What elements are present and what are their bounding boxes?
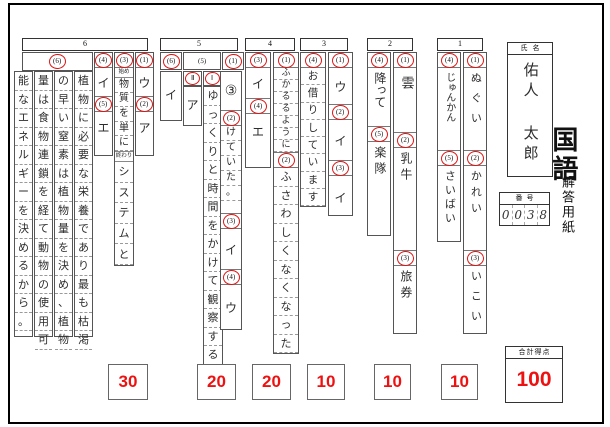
q2-answer: イ [329, 120, 352, 160]
correct-mark-circle: (1) [224, 53, 242, 69]
q2-number-cell: (2) [329, 104, 352, 120]
question-number: (2) [401, 137, 409, 144]
section-6-q4-q5-column: (4) イ (5) エ [94, 52, 113, 156]
question-number: (2) [140, 101, 148, 108]
section-1-right-column: (1) ぬぐい (2) かれい (3) いこい [463, 52, 487, 334]
question-number: (4) [445, 57, 453, 64]
q6-written-answer: 植物に必要な栄養であり最も枯渇 の早い窒素は植物量を決め、植物 量は食物連鎖を経… [22, 71, 93, 337]
question-number: (3) [401, 255, 409, 262]
correct-mark-circle: (5) [440, 150, 458, 166]
empty-cell [221, 201, 241, 213]
correct-mark-circle: (1) [277, 52, 295, 68]
student-name: 佑人 太郎 [521, 62, 538, 165]
question-number: (3) [471, 255, 479, 262]
answer-start-label: 始め [115, 68, 133, 78]
number-box: 番号 0 0 3 8 [499, 192, 550, 226]
correct-mark-circle: (3) [396, 250, 414, 266]
q4-number-cell: (4) [246, 98, 270, 114]
correct-mark-circle: (2) [466, 150, 484, 166]
answer-sheet: 6 (6) 植物に必要な栄養であり最も枯渇 の早い窒素は植物量を決め、植物 量は… [0, 0, 610, 427]
q1-answer: 雲 [394, 68, 416, 132]
section-1-header: 1 [437, 38, 483, 51]
q2-answer: けていた。 [221, 126, 241, 201]
student-number: 0 0 3 8 [500, 205, 549, 225]
section-4-header: 4 [245, 38, 295, 51]
score-box-section-6: 30 [108, 364, 148, 400]
q5-answer: エ [95, 112, 112, 142]
q2-answer: 乳牛 [394, 148, 416, 250]
correct-mark-circle: (2) [135, 96, 153, 112]
q6-answer-line-3: 量は食物連鎖を経て動物の使用可 [34, 71, 53, 337]
question-number: (5) [445, 155, 453, 162]
q3-start-answer: 物質を単に [115, 78, 133, 151]
q2-answer: ふさわしくなくなった [274, 168, 298, 353]
q6-number-cell: (6) [160, 52, 182, 70]
q3-answer: 旅券 [394, 266, 416, 352]
q6-answer-line-1: 植物に必要な栄養であり最も枯渇 [74, 71, 93, 337]
section-6-q6-block: (6) 植物に必要な栄養であり最も枯渇 の早い窒素は植物量を決め、植物 量は食物… [22, 52, 93, 337]
correct-mark-circle: (4) [370, 52, 388, 68]
q4-number-cell: (4) [438, 53, 460, 68]
q3-number-cell: (3) [115, 53, 133, 68]
q3-answer: イ [329, 176, 352, 218]
correct-mark-circle: (3) [222, 213, 240, 229]
q4-answer: イ [95, 68, 112, 96]
question-number: (1) [401, 57, 409, 64]
question-number: (6) [167, 58, 175, 65]
q3-end-answer: システムと [115, 162, 133, 265]
question-number: (5) [375, 131, 383, 138]
correct-mark-circle: (4) [440, 52, 458, 68]
section-6: 6 (6) 植物に必要な栄養であり最も枯渇 の早い窒素は植物量を決め、植物 量は… [22, 38, 148, 337]
correct-mark-circle: (5) [94, 96, 112, 112]
q5-part2-column: ア [183, 86, 202, 126]
question-number: (3) [227, 218, 235, 225]
total-score-box: 合計得点 100 [505, 346, 563, 403]
q3-answer: イ [221, 229, 241, 269]
correct-mark-circle: (4) [304, 52, 322, 68]
section-3: 3 (4) お借りしています (1) ウ (2) イ (3) イ [300, 38, 348, 216]
q2-number-cell: (2) [221, 110, 241, 126]
number-digit: 0 [512, 205, 525, 225]
section-4-right-column: (1) ふかるるように (2) ふさわしくなくなった [273, 52, 299, 354]
q4-answer: ウ [221, 285, 241, 329]
section-5-header: 5 [160, 38, 238, 51]
correct-mark-circle: Ⅰ [204, 71, 220, 85]
q4-answer: お借りしています [301, 68, 325, 206]
correct-mark-circle: (6) [48, 53, 66, 69]
name-box: 氏名 佑人 太郎 [507, 42, 553, 177]
q5-number-cell: (5) [368, 126, 390, 142]
q5-number-cell: (5) [95, 96, 112, 112]
q4-number-cell: (4) [301, 53, 325, 68]
q3-number-cell: (3) [464, 250, 486, 266]
q1-answer: ぬぐい [464, 68, 486, 150]
q3-number-cell: (3) [221, 213, 241, 229]
q1-answer: ふかるるように [274, 68, 298, 152]
sheet-title: 解答用紙 [559, 175, 574, 235]
section-2: 2 (4) 降って (5) 楽隊 (1) 雲 (2) 乳牛 (3) 旅券 [367, 38, 413, 334]
question-number: (1) [336, 57, 344, 64]
correct-mark-circle: (2) [331, 104, 349, 120]
q4-answer: 降って [368, 68, 390, 126]
question-number: (4) [375, 57, 383, 64]
question-number: (6) [53, 58, 61, 65]
q1-answer: ウ [136, 68, 153, 96]
score-box-section-1: 10 [441, 364, 478, 400]
section-5-right-column: ③ (2) けていた。 (3) イ (4) ウ [220, 71, 242, 330]
q4-number-cell: (4) [368, 53, 390, 68]
q2-number-cell: (2) [394, 132, 416, 148]
question-number: (1) [471, 57, 479, 64]
total-score-value: 100 [506, 359, 562, 401]
question-number: (3) [336, 165, 344, 172]
section-4-left-column: (3) イ (4) エ [245, 52, 271, 168]
question-number: (5) [198, 57, 207, 65]
question-number: (5) [99, 101, 107, 108]
q5-part2-answer: ア [184, 87, 201, 121]
correct-mark-circle: (4) [249, 98, 267, 114]
q5-answer: さいばい [438, 166, 460, 250]
section-6-header: 6 [22, 38, 148, 51]
q4-answer: エ [246, 114, 270, 148]
q6-answer: イ [161, 72, 181, 116]
q4-number-cell: (4) [221, 269, 241, 285]
correct-mark-circle: Ⅱ [184, 71, 200, 85]
question-number: (4) [227, 274, 235, 281]
q5-number-cell: (5) [183, 52, 221, 70]
correct-mark-circle: (3) [331, 160, 349, 176]
section-2-header: 2 [367, 38, 413, 51]
q6-number-cell: (6) [22, 52, 93, 71]
part-2-label-cell: Ⅱ [183, 71, 202, 86]
question-number: (2) [282, 157, 290, 164]
q6-answer-line-2: の早い窒素は植物量を決め、植物 [54, 71, 73, 337]
q2-answer: ア [136, 112, 153, 142]
name-value-area: 佑人 太郎 [508, 55, 552, 165]
correct-mark-circle: (4) [222, 269, 240, 285]
q3-answer: イ [246, 68, 270, 98]
question-number: (2) [336, 109, 344, 116]
score-box-section-4: 20 [252, 364, 291, 400]
q1-number-cell: (1) [222, 52, 244, 70]
q2-number-cell: (2) [464, 150, 486, 166]
section-5: 5 (6) (5) (1) イ Ⅱ Ⅰ ア ゆっくりと時間をかけて観察する [160, 38, 238, 366]
correct-mark-circle: (3) [249, 52, 267, 68]
q3-number-cell: (3) [394, 250, 416, 266]
question-number: (3) [120, 57, 128, 64]
score-box-section-5: 20 [197, 364, 236, 400]
question-number: (1) [140, 57, 148, 64]
q2-answer: かれい [464, 166, 486, 250]
correct-mark-circle: (2) [396, 132, 414, 148]
correct-mark-circle: (2) [222, 110, 240, 126]
correct-mark-circle: (4) [94, 52, 112, 68]
q1-number-cell: (1) [274, 53, 298, 68]
q3-number-cell: (3) [246, 53, 270, 68]
q1-answer: ③ [221, 72, 241, 110]
q2-number-cell: (2) [274, 152, 298, 168]
number-digit: 0 [500, 205, 512, 225]
section-6-q3-column: (3) 始め 物質を単に 終わり システムと [114, 52, 134, 266]
correct-mark-circle: (1) [135, 52, 153, 68]
total-score-label: 合計得点 [506, 347, 562, 359]
correct-mark-circle: (5) [370, 126, 388, 142]
section-6-q1-q2-column: (1) ウ (2) ア [135, 52, 154, 156]
q1-number-cell: (1) [329, 53, 352, 68]
answer-end-label: 終わり [115, 151, 133, 162]
correct-mark-circle: (1) [331, 52, 349, 68]
section-4: 4 (3) イ (4) エ (1) ふかるるように (2) ふさわしくなくなった [245, 38, 295, 354]
correct-mark-circle: (1) [396, 52, 414, 68]
name-label: 氏名 [508, 43, 552, 55]
question-number: (2) [471, 155, 479, 162]
section-5-q5-block: Ⅱ Ⅰ ア ゆっくりと時間をかけて観察する [183, 71, 219, 366]
q1-number-cell: (1) [136, 53, 153, 68]
q3-number-cell: (3) [329, 160, 352, 176]
question-number: (4) [309, 57, 317, 64]
question-number: (4) [99, 57, 107, 64]
number-digit: 3 [524, 205, 537, 225]
score-box-section-2: 10 [374, 364, 411, 400]
correct-mark-circle: (3) [466, 250, 484, 266]
section-3-left-column: (4) お借りしています [300, 52, 326, 207]
question-number: (1) [229, 58, 237, 65]
section-3-right-column: (1) ウ (2) イ (3) イ [328, 52, 353, 216]
question-number: (2) [227, 115, 235, 122]
correct-mark-circle: (6) [162, 53, 180, 69]
question-number: (4) [254, 103, 262, 110]
q6-answer-line-4: 能なエネルギーを決めるから。 [14, 71, 33, 337]
q1-answer: ウ [329, 68, 352, 104]
section-1-left-column: (4) じゅんかん (5) さいばい [437, 52, 461, 242]
q1-number-cell: (1) [464, 53, 486, 68]
correct-mark-circle: (2) [277, 152, 295, 168]
q4-answer: じゅんかん [438, 68, 460, 150]
section-5-q6-column: イ [160, 71, 182, 121]
section-2-right-column: (1) 雲 (2) 乳牛 (3) 旅券 [393, 52, 417, 334]
q1-number-cell: (1) [394, 53, 416, 68]
q5-answer: 楽隊 [368, 142, 390, 242]
section-2-left-column: (4) 降って (5) 楽隊 [367, 52, 391, 236]
correct-mark-circle: (1) [466, 52, 484, 68]
number-label: 番号 [500, 193, 549, 205]
q2-number-cell: (2) [136, 96, 153, 112]
question-number: (3) [254, 57, 262, 64]
question-number: (1) [282, 57, 290, 64]
q5-number-cell: (5) [438, 150, 460, 166]
score-box-section-3: 10 [307, 364, 345, 400]
correct-mark-circle: (3) [115, 52, 133, 68]
section-1: 1 (4) じゅんかん (5) さいばい (1) ぬぐい (2) かれい (3)… [437, 38, 483, 334]
number-digit: 8 [537, 205, 550, 225]
section-3-header: 3 [300, 38, 348, 51]
q3-answer: いこい [464, 266, 486, 348]
q4-number-cell: (4) [95, 53, 112, 68]
